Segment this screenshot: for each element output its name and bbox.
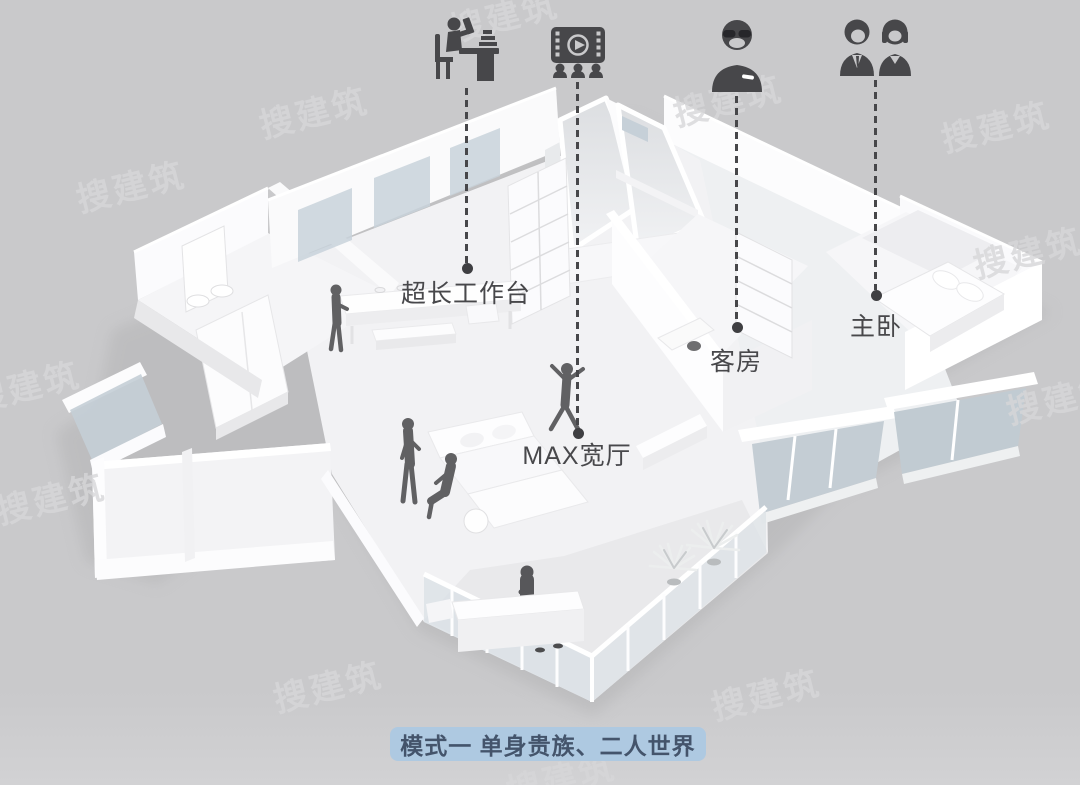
leader-dot-master-bedroom	[871, 290, 882, 301]
floor-plan-render	[0, 0, 1080, 785]
label-worktable: 超长工作台	[316, 274, 616, 310]
leader-dot-worktable	[462, 263, 473, 274]
apartment-mode-diagram: 搜建筑 搜建筑 搜建筑 搜建筑 搜建筑 搜建筑 搜建筑 搜建筑 搜建筑 搜建筑 …	[0, 0, 1080, 785]
mode-caption-text: 模式一 单身贵族、二人世界	[400, 727, 695, 761]
single-person-icon	[709, 18, 765, 92]
leader-line-worktable	[465, 88, 468, 263]
label-wide-hall: MAX宽厅	[427, 436, 727, 472]
label-master-bedroom: 主卧	[726, 307, 1026, 343]
leader-line-wide-hall	[576, 82, 579, 428]
mode-caption-badge: 模式一 单身贵族、二人世界	[390, 727, 706, 761]
leader-line-master-bedroom	[874, 80, 877, 290]
label-guest-room: 客房	[586, 342, 886, 378]
leader-line-guest-room	[735, 96, 738, 322]
couple-icon	[838, 18, 914, 76]
person-reading-at-desk-icon	[433, 16, 501, 82]
home-cinema-icon	[550, 26, 606, 78]
